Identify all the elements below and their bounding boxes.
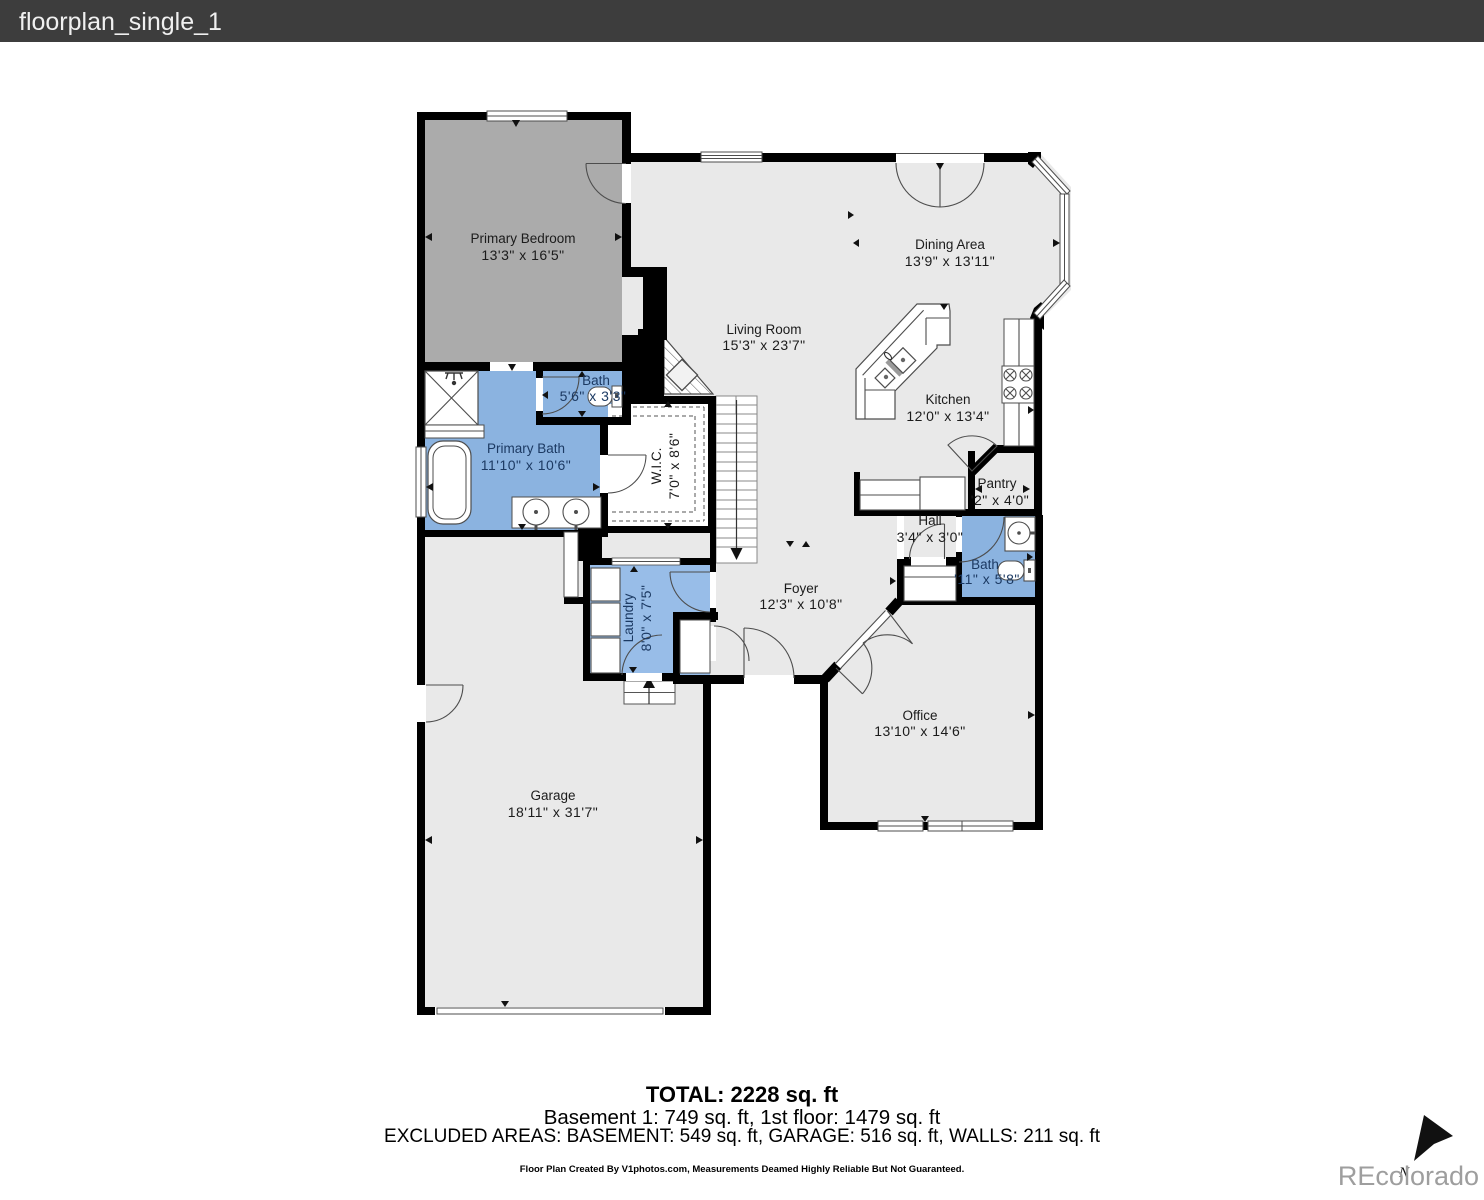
svg-text:Primary Bedroom: Primary Bedroom bbox=[470, 231, 575, 246]
svg-text:Floor Plan Created By V1photos: Floor Plan Created By V1photos.com, Meas… bbox=[520, 1164, 965, 1175]
svg-text:floorplan_single_1: floorplan_single_1 bbox=[19, 8, 222, 36]
svg-text:13'10" x 14'6": 13'10" x 14'6" bbox=[874, 723, 966, 739]
svg-text:Kitchen: Kitchen bbox=[925, 392, 970, 407]
svg-text:Dining Area: Dining Area bbox=[915, 237, 985, 252]
svg-text:Office: Office bbox=[902, 708, 937, 723]
svg-text:TOTAL: 2228 sq. ft: TOTAL: 2228 sq. ft bbox=[646, 1082, 839, 1107]
svg-text:8'0" x 7'5": 8'0" x 7'5" bbox=[638, 585, 654, 652]
svg-text:Bath: Bath bbox=[582, 373, 610, 388]
svg-text:13'3" x 16'5": 13'3" x 16'5" bbox=[481, 247, 564, 263]
svg-text:'2" x 4'0": '2" x 4'0" bbox=[971, 492, 1029, 508]
svg-text:11'10" x 10'6": 11'10" x 10'6" bbox=[481, 457, 572, 473]
svg-text:'11" x 5'8": '11" x 5'8" bbox=[954, 571, 1020, 587]
svg-text:3'4" x 3'0": 3'4" x 3'0" bbox=[897, 529, 964, 545]
svg-text:Bath: Bath bbox=[971, 557, 999, 572]
svg-text:Laundry: Laundry bbox=[621, 593, 636, 642]
svg-text:W.I.C.: W.I.C. bbox=[649, 448, 664, 485]
svg-text:15'3" x 23'7": 15'3" x 23'7" bbox=[722, 337, 805, 353]
svg-text:Garage: Garage bbox=[530, 788, 575, 803]
svg-text:Hall: Hall bbox=[918, 513, 941, 528]
svg-text:Pantry: Pantry bbox=[977, 476, 1016, 491]
svg-text:Primary Bath: Primary Bath bbox=[487, 441, 565, 456]
svg-text:Foyer: Foyer bbox=[784, 581, 819, 596]
svg-text:12'0" x 13'4": 12'0" x 13'4" bbox=[906, 408, 989, 424]
svg-text:EXCLUDED AREAS: BASEMENT: 549: EXCLUDED AREAS: BASEMENT: 549 sq. ft, GA… bbox=[384, 1126, 1101, 1147]
svg-text:7'0" x 8'6": 7'0" x 8'6" bbox=[666, 433, 682, 500]
svg-text:13'9" x 13'11": 13'9" x 13'11" bbox=[905, 253, 996, 269]
svg-text:Living Room: Living Room bbox=[726, 322, 801, 337]
svg-text:18'11" x 31'7": 18'11" x 31'7" bbox=[508, 804, 599, 820]
svg-text:5'6" x 3'3": 5'6" x 3'3" bbox=[560, 388, 627, 404]
svg-text:REcolorado: REcolorado bbox=[1338, 1161, 1479, 1191]
svg-text:12'3" x 10'8": 12'3" x 10'8" bbox=[759, 596, 842, 612]
